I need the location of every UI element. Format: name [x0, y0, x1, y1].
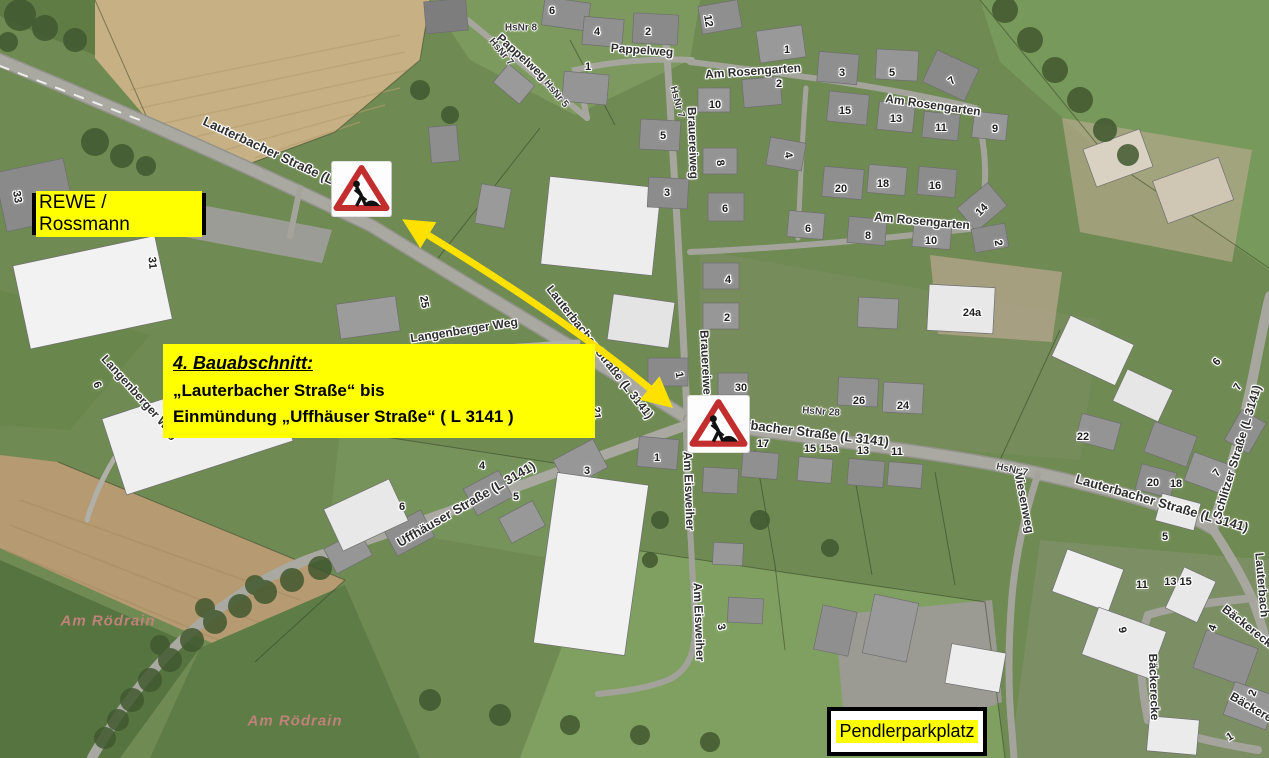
rewe-rossmann-text: REWE / Rossmann: [36, 191, 202, 237]
rewe-rossmann-label: REWE / Rossmann: [32, 193, 206, 235]
info-box-line3: Einmündung „Uffhäuser Straße“ ( L 3141 ): [173, 404, 585, 430]
pendlerparkplatz-label: Pendlerparkplatz: [827, 707, 987, 756]
info-box-title: 4. Bauabschnitt:: [173, 350, 585, 378]
pendlerparkplatz-text: Pendlerparkplatz: [836, 720, 977, 743]
info-box-line2: „Lauterbacher Straße“ bis: [173, 378, 585, 404]
construction-info-box: 4. Bauabschnitt: „Lauterbacher Straße“ b…: [163, 344, 595, 438]
map-canvas: Lauterbacher Straße (L 3141)Lauterbacher…: [0, 0, 1269, 758]
